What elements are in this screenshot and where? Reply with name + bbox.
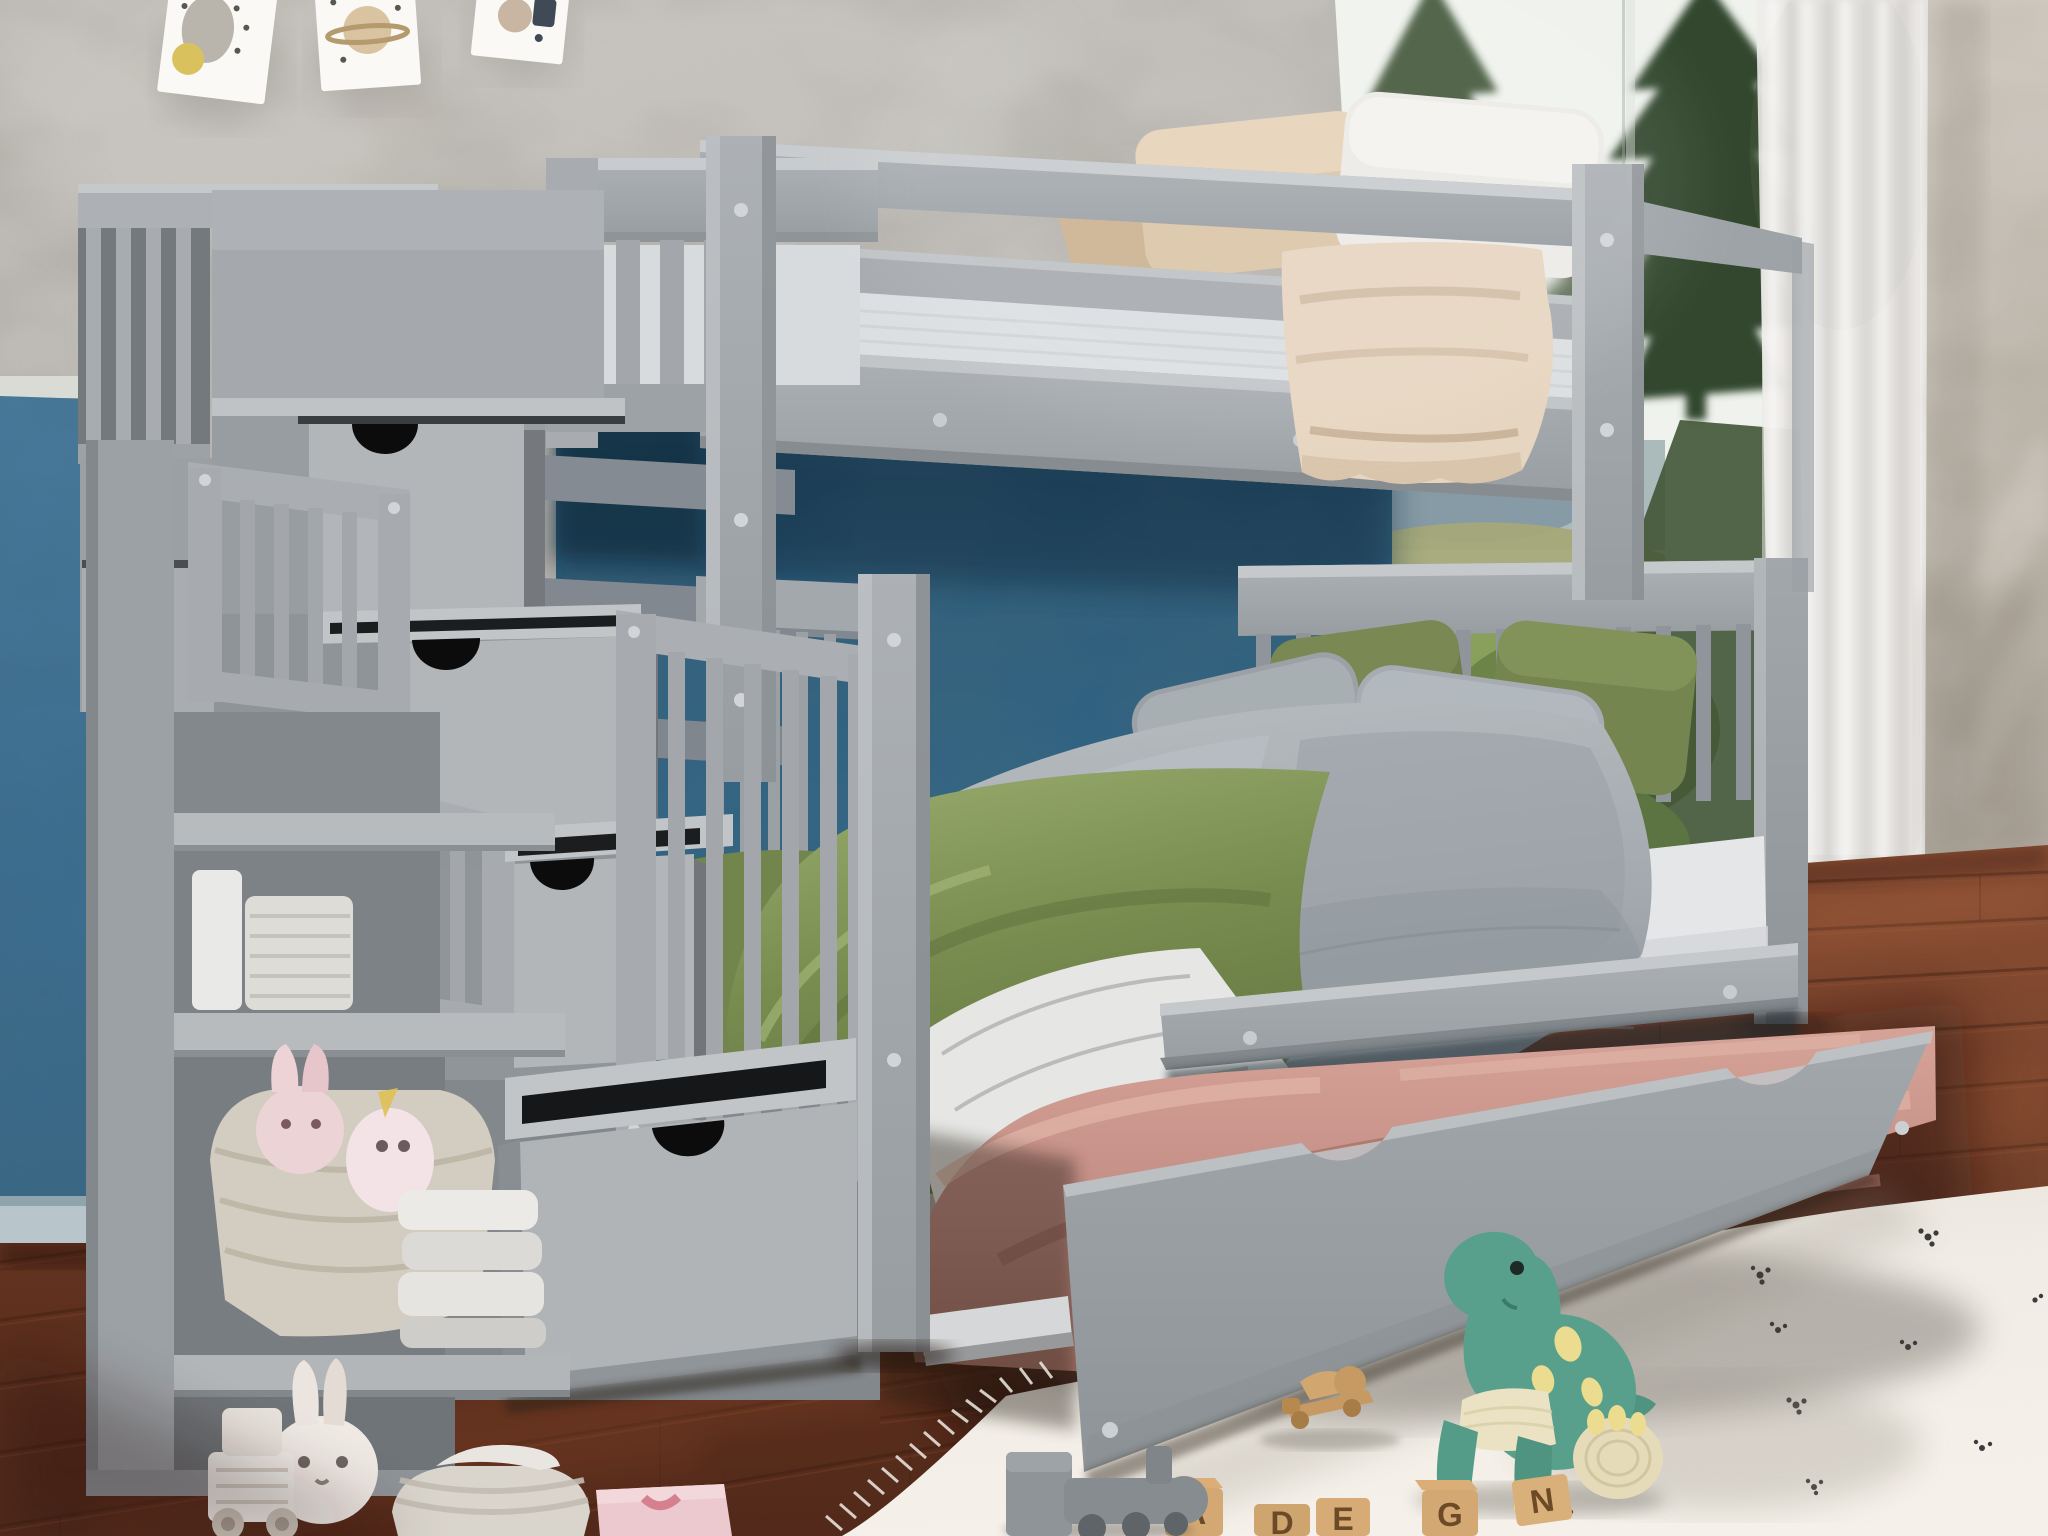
- svg-text:D: D: [1270, 1505, 1293, 1536]
- svg-text:N: N: [1528, 1481, 1557, 1521]
- svg-text:G: G: [1437, 1496, 1463, 1533]
- svg-text:E: E: [1332, 1501, 1353, 1536]
